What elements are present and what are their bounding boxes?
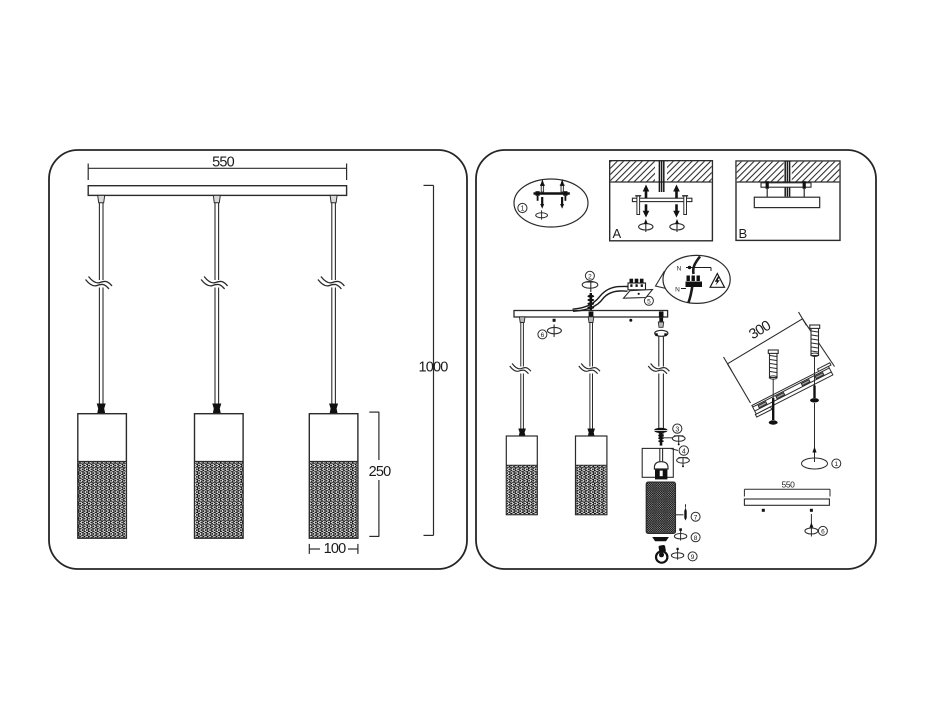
svg-text:1: 1 [834,461,838,468]
svg-text:100: 100 [324,541,347,557]
svg-text:1000: 1000 [418,360,448,376]
svg-text:3: 3 [675,426,679,433]
svg-text:A: A [613,226,622,241]
svg-text:550: 550 [782,480,796,490]
svg-text:250: 250 [369,464,392,480]
svg-text:2: 2 [588,273,592,280]
svg-text:N: N [677,266,682,273]
svg-text:B: B [739,226,748,241]
svg-text:6: 6 [821,529,825,536]
svg-text:4: 4 [682,448,686,455]
svg-text:8: 8 [694,535,698,542]
svg-text:5: 5 [647,298,651,305]
svg-text:6: 6 [541,332,545,339]
svg-text:9: 9 [691,554,695,561]
svg-text:550: 550 [212,155,235,171]
svg-text:N: N [675,287,680,294]
svg-text:7: 7 [694,514,698,521]
svg-text:1: 1 [520,206,524,213]
